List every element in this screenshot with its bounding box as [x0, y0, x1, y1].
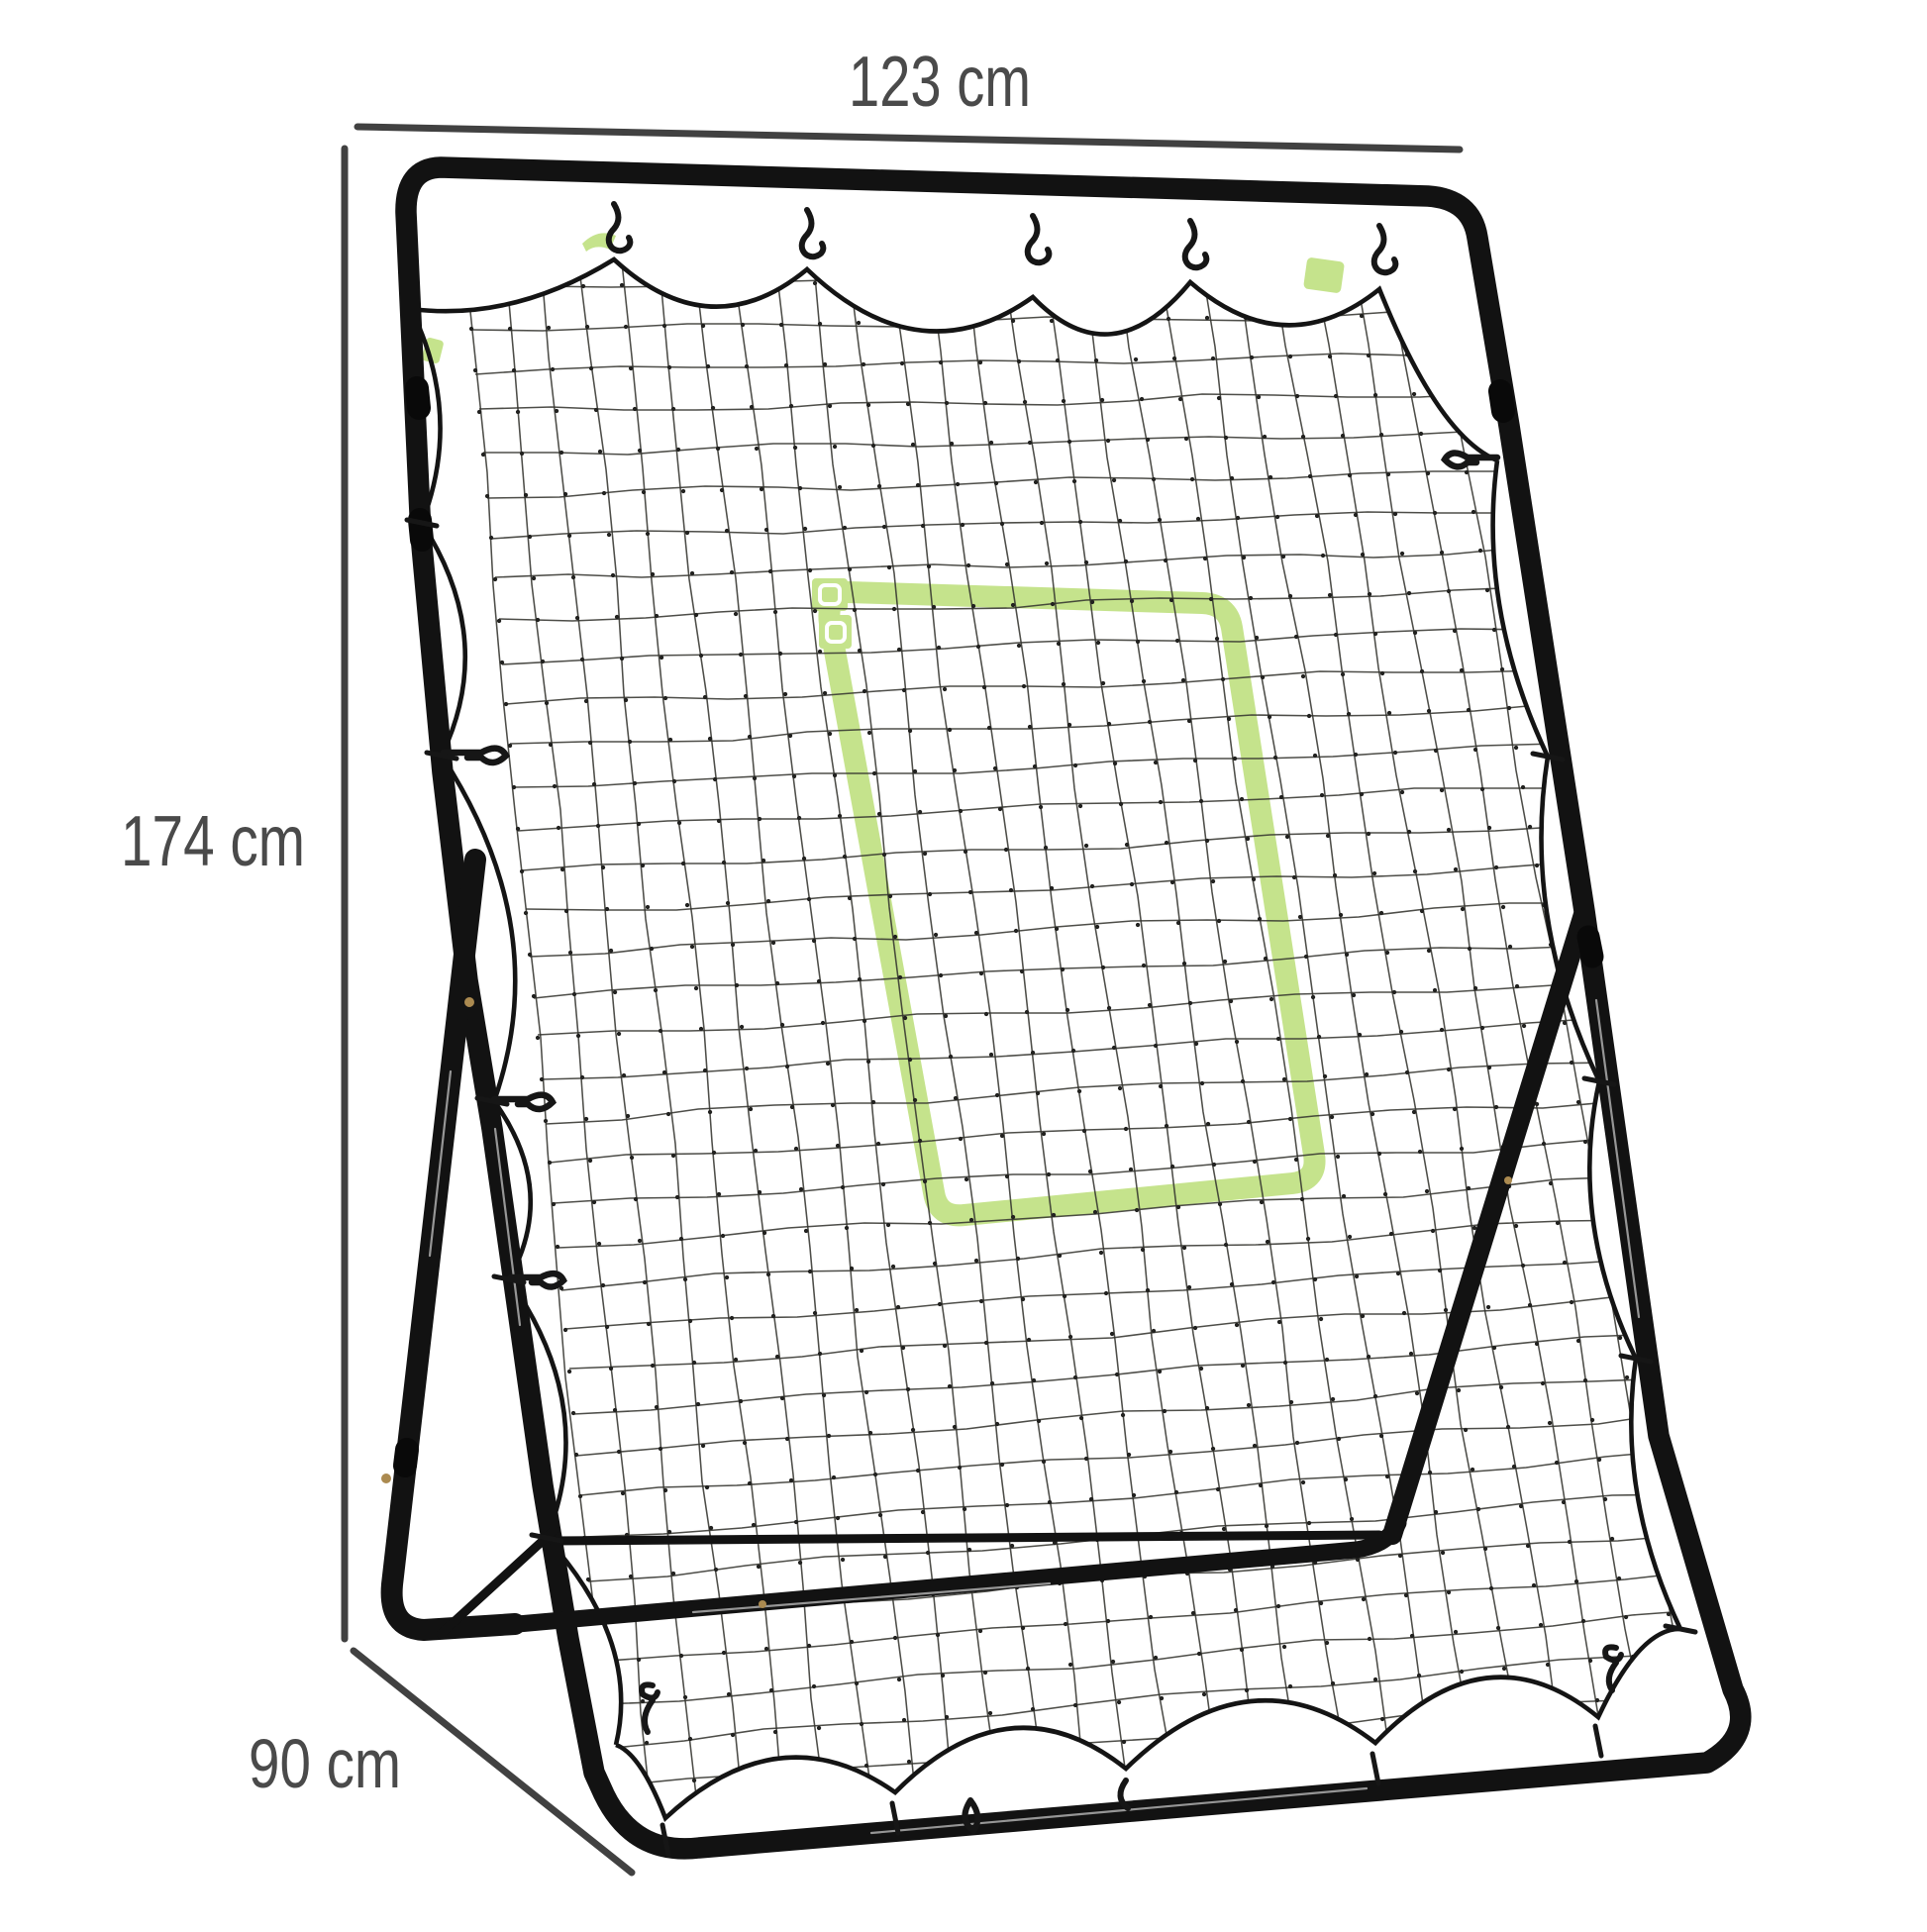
svg-text:123 cm: 123 cm [849, 43, 1031, 122]
svg-text:174 cm: 174 cm [121, 802, 305, 881]
svg-text:90 cm: 90 cm [249, 1725, 401, 1802]
